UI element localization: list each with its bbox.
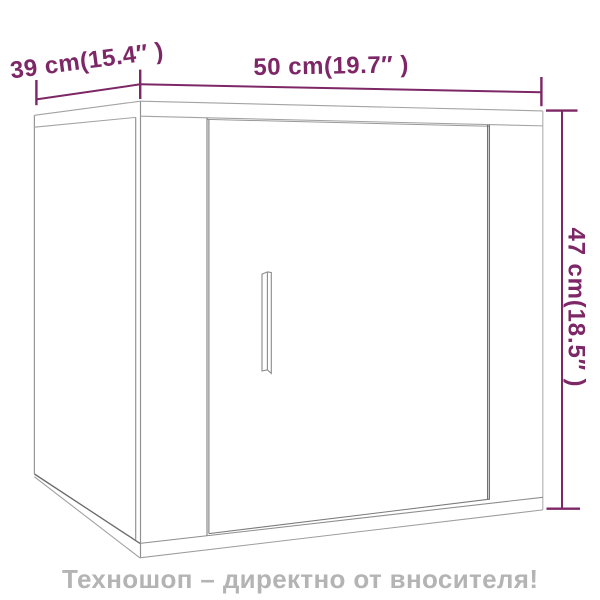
svg-text:50 cm(19.7″ ): 50 cm(19.7″ ) [253,51,408,81]
svg-text:Техношоп – директно от вносите: Техношоп – директно от вносителя! [62,564,538,594]
svg-text:47 cm(18.5″ ): 47 cm(18.5″ ) [563,228,590,387]
